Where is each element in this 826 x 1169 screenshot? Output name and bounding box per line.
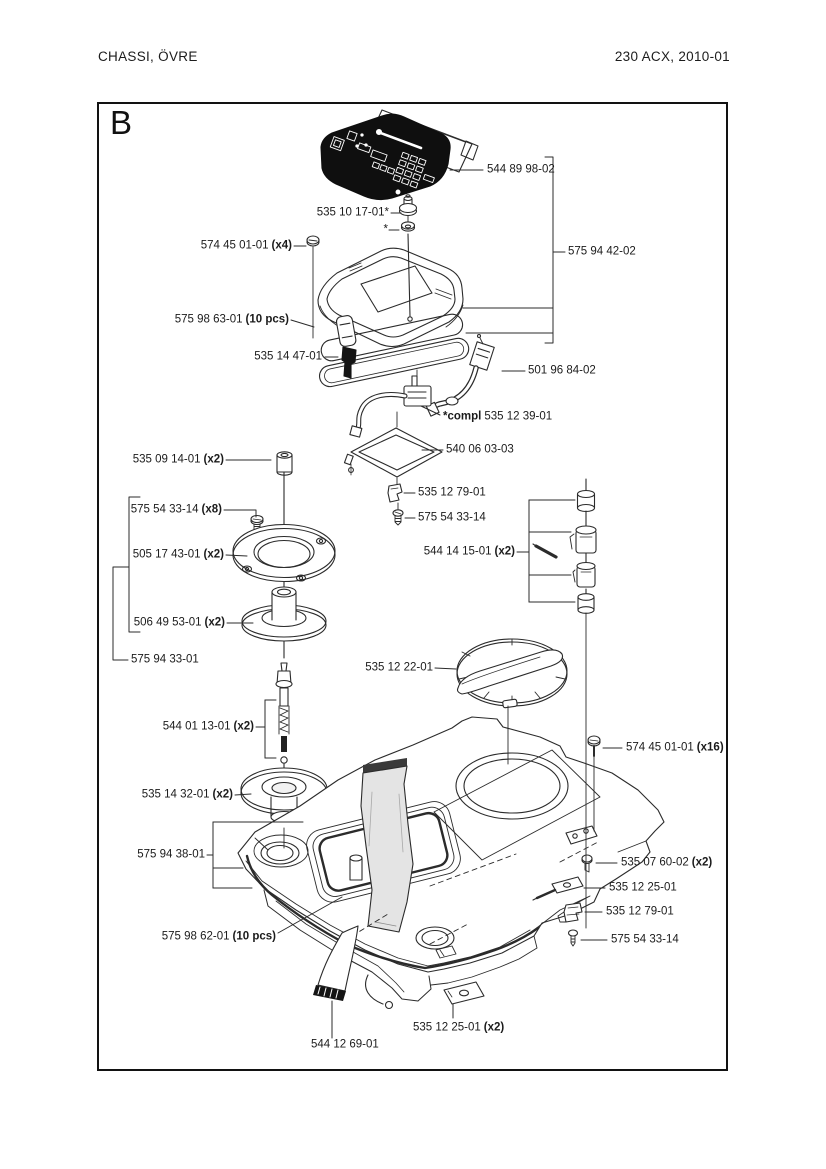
contact-bolt-drawing: [400, 195, 417, 231]
dial-drawing: [457, 639, 567, 708]
contact-kit-drawing: [533, 479, 596, 613]
left-column-parts-drawing: [233, 452, 335, 823]
clip-screw-upper-drawing: [388, 478, 403, 525]
screw-x4-drawing: [307, 236, 319, 246]
cable-drawing: [426, 335, 494, 417]
exploded-diagram: [0, 0, 826, 1169]
keypad-panel-drawing: [321, 110, 478, 200]
